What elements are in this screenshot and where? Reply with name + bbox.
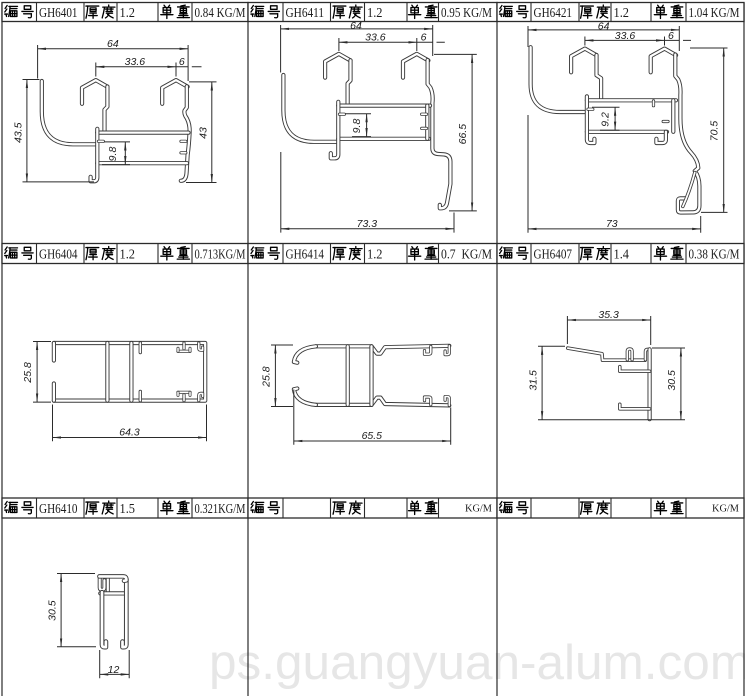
svg-text:30.5: 30.5 [46, 600, 58, 621]
svg-text:31.5: 31.5 [527, 370, 539, 391]
svg-text:30.5: 30.5 [666, 370, 678, 391]
svg-text:GH6407: GH6407 [534, 248, 573, 263]
svg-text:1.5: 1.5 [120, 502, 136, 517]
svg-text:64: 64 [107, 38, 119, 50]
svg-text:25.8: 25.8 [261, 366, 273, 388]
svg-text:KG/M: KG/M [465, 504, 493, 515]
svg-text:1.2: 1.2 [120, 6, 136, 21]
svg-text:GH6411: GH6411 [286, 6, 325, 21]
svg-text:9.8: 9.8 [107, 147, 119, 162]
svg-text:35.3: 35.3 [598, 309, 619, 321]
svg-text:ps.guangyuan-alum.com: ps.guangyuan-alum.com [209, 635, 745, 690]
svg-text:0.321KG/M: 0.321KG/M [195, 502, 246, 517]
svg-text:73: 73 [606, 218, 618, 230]
svg-text:1.4: 1.4 [614, 248, 630, 263]
svg-text:66.5: 66.5 [457, 124, 469, 145]
svg-text:GH6421: GH6421 [534, 6, 573, 21]
svg-text:6: 6 [179, 56, 185, 68]
svg-text:0.95 KG/M: 0.95 KG/M [441, 6, 492, 21]
svg-text:0.84 KG/M: 0.84 KG/M [195, 6, 246, 21]
svg-text:6: 6 [668, 30, 674, 42]
svg-text:0.713KG/M: 0.713KG/M [195, 248, 246, 263]
svg-text:33.6: 33.6 [125, 56, 146, 68]
svg-text:GH6404: GH6404 [39, 248, 78, 263]
svg-text:12: 12 [108, 664, 120, 676]
svg-text:73.3: 73.3 [357, 218, 378, 230]
svg-text:9.2: 9.2 [599, 112, 611, 127]
svg-text:1.2: 1.2 [367, 6, 383, 21]
svg-text:65.5: 65.5 [362, 430, 383, 442]
svg-text:64.3: 64.3 [119, 427, 140, 439]
svg-text:64: 64 [350, 20, 362, 32]
svg-text:6: 6 [421, 32, 427, 44]
svg-text:1.2: 1.2 [367, 248, 383, 263]
svg-text:33.6: 33.6 [365, 32, 386, 44]
svg-text:1.04 KG/M: 1.04 KG/M [689, 6, 740, 21]
svg-text:GH6401: GH6401 [39, 6, 78, 21]
svg-text:25.8: 25.8 [22, 362, 34, 384]
svg-text:KG/M: KG/M [712, 504, 740, 515]
svg-text:0.38 KG/M: 0.38 KG/M [689, 248, 740, 263]
svg-text:GH6410: GH6410 [39, 502, 78, 517]
svg-text:0.7 KG/M: 0.7 KG/M [441, 248, 492, 263]
svg-text:43: 43 [197, 127, 209, 139]
svg-text:9.8: 9.8 [351, 119, 363, 134]
svg-text:1.2: 1.2 [120, 248, 136, 263]
svg-text:GH6414: GH6414 [286, 248, 325, 263]
svg-text:33.6: 33.6 [615, 30, 636, 42]
svg-text:64: 64 [598, 20, 610, 32]
svg-text:43.5: 43.5 [13, 122, 25, 143]
svg-text:70.5: 70.5 [708, 121, 720, 142]
svg-text:1.2: 1.2 [614, 6, 630, 21]
